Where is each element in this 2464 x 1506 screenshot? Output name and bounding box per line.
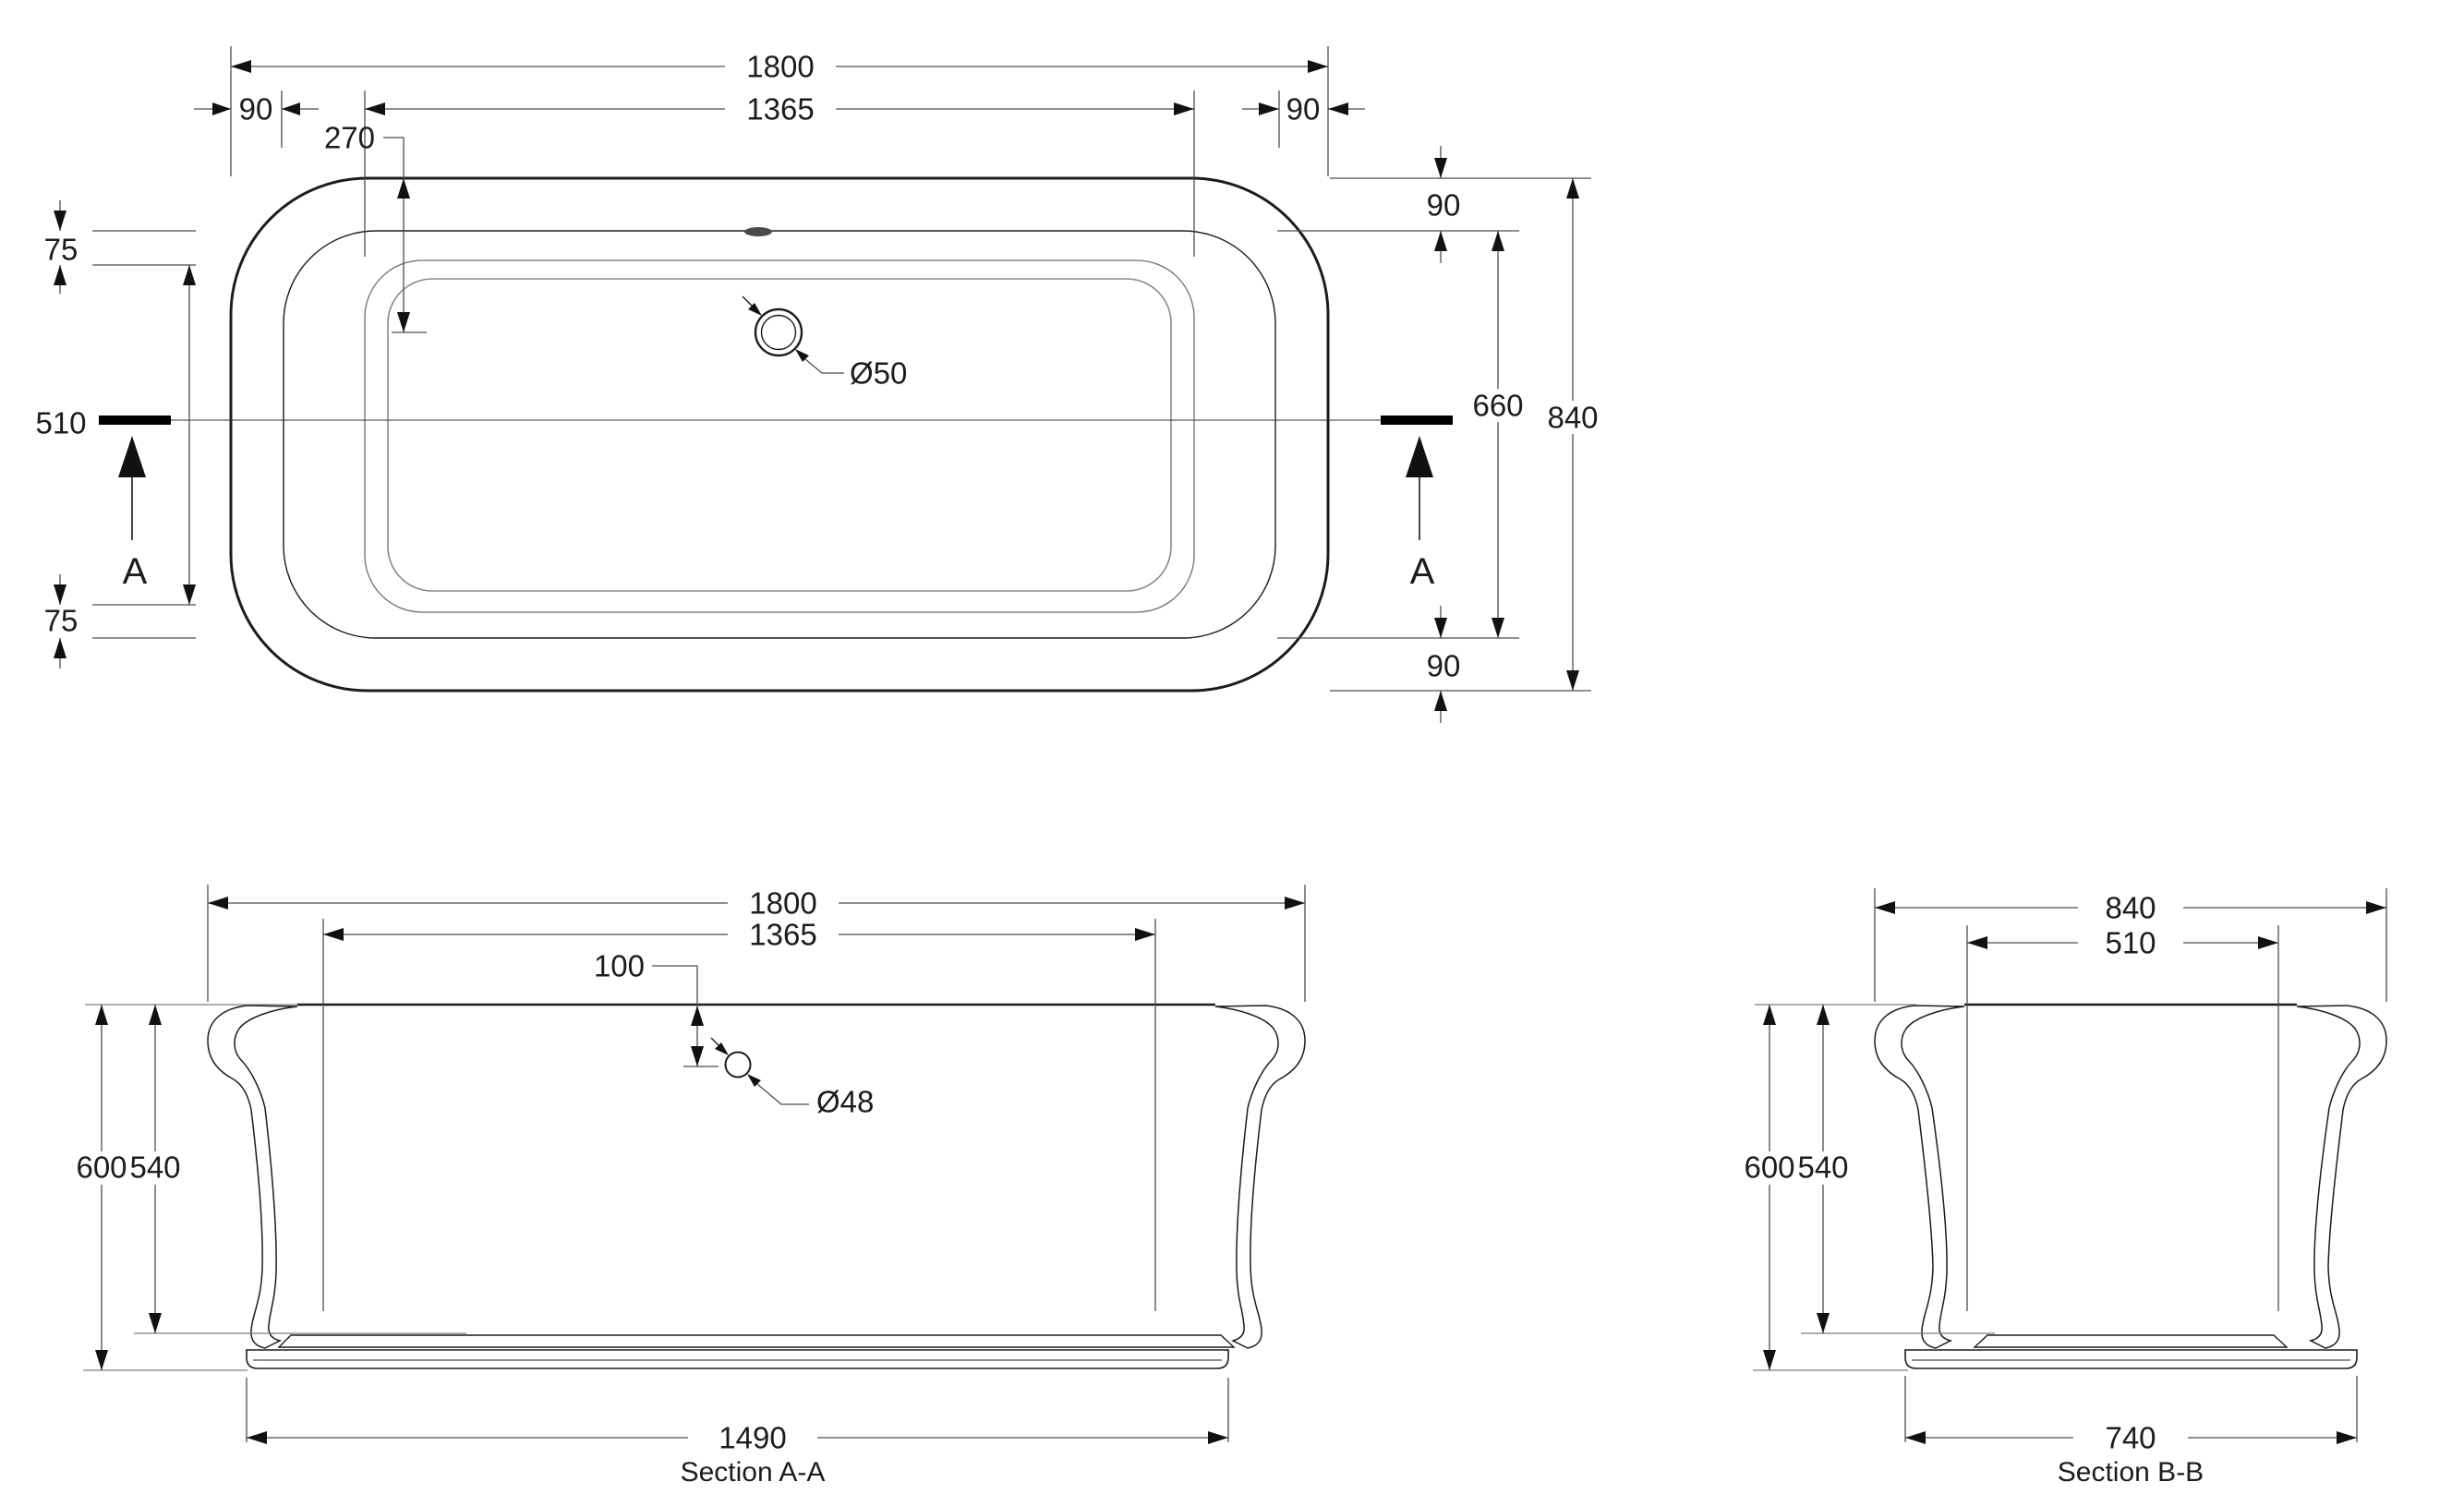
- plan-outer-rim-outline: [231, 178, 1328, 691]
- aa-dim-overall-height: 600: [76, 1151, 127, 1185]
- plan-rim-inner-edge: [284, 231, 1275, 638]
- section-cut-markers: [99, 416, 1453, 540]
- aa-right-wall-shell: [1215, 1006, 1305, 1348]
- aa-dim-base-length: 1490: [719, 1421, 786, 1455]
- plan-extension-lines: [92, 46, 1591, 691]
- bb-dim-inner-width: 510: [2105, 926, 2156, 960]
- plan-dimension-texts: 1800 90 1365 90 270 75 510 75 90 660 840…: [35, 50, 1598, 683]
- bathtub-technical-drawing: 1800 90 1365 90 270 75 510 75 90 660 840…: [0, 0, 2464, 1506]
- bb-dimension-lines: [1769, 908, 2386, 1438]
- bb-title: Section B-B: [2058, 1457, 2204, 1488]
- drain-outer-circle: [755, 309, 802, 355]
- aa-outlines: [208, 1005, 1305, 1368]
- aa-dimension-texts: 1800 1365 100 600 540 Ø48 1490 Section A…: [76, 886, 874, 1488]
- section-bb-view: 840 510 600 540 740 Section B-B: [1744, 888, 2386, 1488]
- bb-dim-base-width: 740: [2105, 1421, 2156, 1455]
- aa-floor-shell: [279, 1335, 1234, 1347]
- dim-rim-bottom: 90: [1427, 649, 1461, 683]
- dim-rim-top: 90: [1427, 188, 1461, 223]
- drain-inner-circle: [762, 316, 796, 350]
- aa-drain-circle: [726, 1053, 751, 1078]
- aa-left-wall-shell: [208, 1006, 297, 1348]
- plan-bowl-top-edge: [365, 260, 1194, 612]
- plan-view: 1800 90 1365 90 270 75 510 75 90 660 840…: [35, 46, 1598, 723]
- aa-title: Section A-A: [681, 1457, 826, 1488]
- plan-bowl-waterline: [388, 279, 1171, 591]
- bb-dimension-texts: 840 510 600 540 740 Section B-B: [1744, 891, 2204, 1488]
- dim-rim-top-width: 75: [44, 233, 79, 267]
- dim-rim-bottom-width: 75: [44, 604, 79, 638]
- dim-rim-left: 90: [239, 92, 273, 127]
- bb-right-wall-shell: [2297, 1006, 2386, 1348]
- bb-left-wall-shell: [1875, 1006, 1964, 1348]
- aa-dim-inner-length: 1365: [749, 918, 816, 952]
- bb-floor-shell: [1975, 1335, 2287, 1347]
- section-aa-view: 1800 1365 100 600 540 Ø48 1490 Section A…: [76, 885, 1305, 1488]
- aa-base-plinth: [247, 1350, 1228, 1368]
- section-view-arrow-right: [1406, 436, 1433, 477]
- bb-dim-overall-height: 600: [1744, 1151, 1794, 1185]
- aa-dim-drain-depth: 100: [594, 949, 645, 983]
- drawing-sheet: 1800 90 1365 90 270 75 510 75 90 660 840…: [0, 0, 2464, 1506]
- overflow-slot: [744, 227, 772, 236]
- aa-dimension-lines: [102, 903, 1305, 1438]
- aa-arrowheads: [95, 897, 1305, 1444]
- aa-dim-overall-length: 1800: [749, 886, 816, 921]
- aa-dim-drain-diameter: Ø48: [816, 1085, 874, 1119]
- dim-inner-width: 660: [1472, 389, 1523, 423]
- aa-extension-lines: [83, 885, 1305, 1442]
- bb-arrowheads: [1763, 901, 2386, 1444]
- dim-drain-diameter: Ø50: [850, 356, 907, 391]
- dim-rim-right: 90: [1286, 92, 1321, 127]
- dim-drain-offset: 270: [324, 121, 375, 155]
- bb-dim-overall-width: 840: [2105, 891, 2156, 925]
- section-letter-right: A: [1410, 551, 1435, 592]
- aa-drain-callout: [711, 1038, 809, 1104]
- section-view-arrow-left: [118, 436, 146, 477]
- dim-inner-length: 1365: [746, 92, 814, 127]
- plan-outlines: [171, 178, 1381, 691]
- dim-section-width: 510: [35, 406, 86, 440]
- bb-outlines: [1875, 1005, 2386, 1368]
- aa-dim-inner-depth: 540: [129, 1151, 180, 1185]
- section-letter-left: A: [123, 551, 148, 592]
- plan-arrowheads: [54, 60, 1579, 711]
- drain-callout: [743, 296, 844, 373]
- dim-overall-width: 840: [1547, 401, 1598, 435]
- bb-base-plinth: [1905, 1350, 2357, 1368]
- dim-overall-length: 1800: [746, 50, 814, 84]
- plan-dimension-lines: [60, 66, 1573, 723]
- section-cut-bar-right: [1381, 416, 1453, 425]
- bb-dim-inner-depth: 540: [1797, 1151, 1848, 1185]
- section-cut-bar-left: [99, 416, 171, 425]
